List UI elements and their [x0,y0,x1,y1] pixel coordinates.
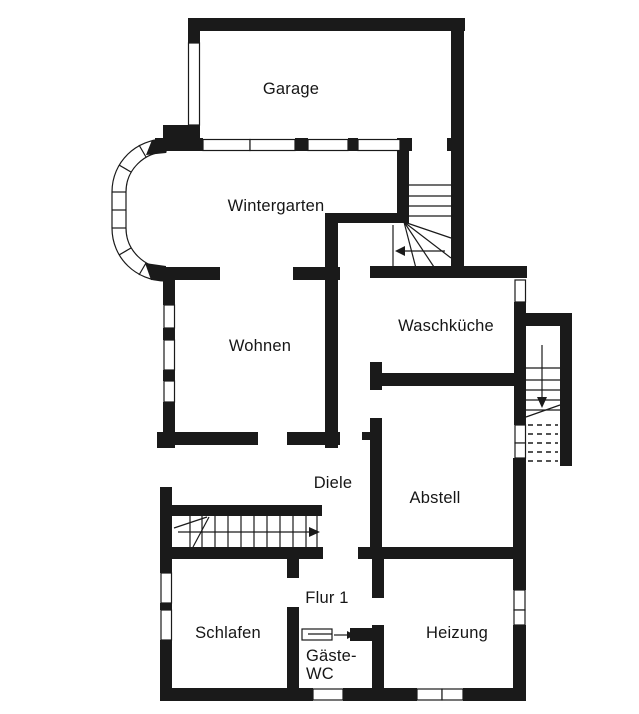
stair-break-line [526,405,560,417]
room-label-gaeste-wc-line1: Gäste- [306,647,357,665]
window-schlafen-left-2 [161,610,172,640]
wall-wohnen-left-3 [163,370,175,381]
room-label-wintergarten: Wintergarten [228,197,325,215]
wall-left-lower-3 [160,640,172,688]
wall-wohnen-bottom-left [157,432,258,445]
wall-wohnen-left-4 [163,402,175,432]
wall-garage-top [188,18,465,31]
bay-divider-6 [119,248,131,255]
door-gaeste-wc [302,629,355,640]
window-garage-left [189,43,200,125]
wall-schlafen-divider-upper [287,559,299,578]
wall-gaeste-wc-top-nub [350,628,384,641]
wall-wintergarten-top-post4 [447,138,458,151]
window-wintergarten-top-4 [358,140,400,151]
wall-flur-top-right [358,547,515,559]
wall-flur-right-upper [372,559,384,598]
wall-stair-lobby-top [328,213,408,223]
window-stair-right-2 [515,443,526,458]
window-wohnen-left-2 [164,340,175,370]
exterior-stair [526,345,560,461]
wall-exterior-stair-right [560,313,572,466]
window-heizung-right-1 [514,590,525,610]
bay-divider-7 [139,263,146,275]
stair-winder-1 [404,222,451,238]
wall-wintergarten-top-post1 [295,138,308,151]
window-wintergarten-top-2 [250,140,295,151]
wall-abstell-left [370,418,382,548]
window-stair-right-1 [515,425,526,443]
window-bottom-heizung-1 [417,689,442,700]
bay-window [112,139,166,281]
window-wohnen-left-1 [164,305,175,328]
room-label-schlafen: Schlafen [195,624,261,642]
room-label-garage: Garage [263,80,319,98]
wall-left-lower-1 [160,487,172,573]
stair-arrow-down-icon [537,397,547,408]
wall-bottom-1 [160,688,313,701]
wall-wintergarten-top-post2 [348,138,358,151]
stair-arrow-right-icon [309,527,320,537]
window-schlafen-left-1 [161,573,172,603]
wall-right-lower-1 [513,458,526,590]
wall-garage-left-upper [188,31,200,43]
room-label-waschkueche: Waschküche [398,317,494,335]
wall-abstell-left-tick [362,432,370,440]
wall-wohnen-left-1 [163,280,175,305]
floor-plan-canvas: Garage Wintergarten Wohnen Waschküche Di… [0,0,639,714]
wall-waschkueche-bottom [370,373,515,386]
wall-wohnen-right [325,213,338,448]
room-label-gaeste-wc-line2: WC [306,665,334,683]
wall-left-lower-2 [160,603,172,610]
room-label-diele: Diele [314,474,353,492]
stair-winder-2 [404,222,451,258]
window-bottom-heizung-2 [442,689,463,700]
room-label-flur1: Flur 1 [305,589,348,607]
stair-arrow-left-icon [395,246,405,256]
wall-schlafen-divider-lower [287,607,299,688]
wall-wohnen-bottom-right [287,432,340,445]
window-wintergarten-top-3 [308,140,348,151]
wall-wohnen-left-2 [163,328,175,340]
window-wohnen-left-3 [164,381,175,402]
floor-plan: Garage Wintergarten Wohnen Waschküche Di… [0,0,639,714]
lower-stair [174,516,320,547]
window-wintergarten-top-1 [203,140,250,151]
wall-garage-left-corner [163,125,200,138]
wall-bottom-3 [463,688,526,701]
room-label-abstell: Abstell [410,489,461,507]
walls [145,18,572,701]
window-bottom-wc [313,689,343,700]
wall-bottom-2 [343,688,417,701]
room-label-wohnen: Wohnen [229,337,291,355]
bay-divider-2 [119,165,131,172]
wall-flur-top-left [160,547,323,559]
wall-right-upper [514,302,526,425]
wall-wintergarten-bottom-left [162,267,220,280]
bay-divider-1 [139,145,146,157]
room-label-heizung: Heizung [426,624,488,642]
window-waschkueche-right [515,280,526,302]
wall-lower-stair-top [172,505,322,516]
window-heizung-right-2 [514,610,525,625]
